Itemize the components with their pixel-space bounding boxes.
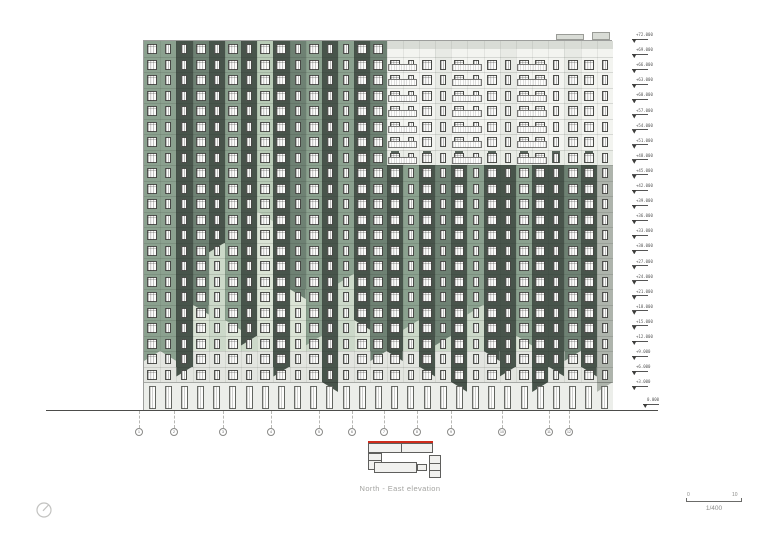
window <box>357 246 367 256</box>
level-marker: +27.000 <box>630 260 654 270</box>
window <box>228 122 238 132</box>
window <box>214 292 220 302</box>
level-value: +36.000 <box>636 214 653 218</box>
window <box>487 215 497 225</box>
window <box>373 184 383 194</box>
window <box>147 277 157 287</box>
window <box>357 184 367 194</box>
level-value: +57.000 <box>636 109 653 113</box>
level-triangle <box>632 190 637 194</box>
window <box>505 277 511 287</box>
level-marker: +33.000 <box>630 229 654 239</box>
window <box>584 184 594 194</box>
window <box>454 370 464 380</box>
ground-floor-window <box>310 386 317 409</box>
window <box>390 277 400 287</box>
window <box>214 230 220 240</box>
column-line <box>548 41 549 382</box>
window <box>505 246 511 256</box>
window <box>214 91 220 101</box>
window <box>519 370 529 380</box>
window <box>584 261 594 271</box>
window <box>553 91 559 101</box>
window <box>260 246 270 256</box>
window <box>343 354 349 364</box>
window <box>276 44 286 54</box>
window <box>343 339 349 349</box>
window <box>327 230 333 240</box>
key-plan-divider <box>429 470 441 471</box>
window <box>584 199 594 209</box>
level-value: +39.000 <box>636 199 653 203</box>
window <box>422 323 432 333</box>
window <box>165 339 171 349</box>
window <box>260 75 270 85</box>
floor-line <box>144 72 613 73</box>
window <box>260 370 270 380</box>
window <box>568 277 578 287</box>
window <box>505 292 511 302</box>
window <box>505 339 511 349</box>
window <box>584 137 594 147</box>
ground-floor-window <box>326 386 333 409</box>
window <box>357 44 367 54</box>
window <box>165 215 171 225</box>
column-line <box>338 41 339 382</box>
window <box>473 354 479 364</box>
window <box>440 60 446 70</box>
window <box>568 308 578 318</box>
level-marker: +54.000 <box>630 124 654 134</box>
window <box>373 153 383 163</box>
window <box>214 153 220 163</box>
window <box>602 199 608 209</box>
window <box>343 168 349 178</box>
window <box>422 199 432 209</box>
window <box>408 354 414 364</box>
window <box>568 122 578 132</box>
window <box>196 370 206 380</box>
window <box>343 106 349 116</box>
window <box>505 199 511 209</box>
window <box>327 246 333 256</box>
window <box>568 215 578 225</box>
window <box>295 277 301 287</box>
window <box>357 91 367 101</box>
facade-parapet-band <box>532 41 548 49</box>
window <box>196 122 206 132</box>
window <box>228 75 238 85</box>
window <box>147 246 157 256</box>
window <box>181 106 187 116</box>
level-marker: +48.000 <box>630 154 654 164</box>
ground-floor-window <box>375 386 382 409</box>
level-value: +21.000 <box>636 290 653 294</box>
window <box>408 230 414 240</box>
ground-floor-window <box>440 386 447 409</box>
window <box>327 137 333 147</box>
grid-axis-line <box>223 411 224 428</box>
scale-bar-left-label: 0 <box>687 493 690 498</box>
window <box>165 199 171 209</box>
floor-line <box>144 305 613 306</box>
column-line <box>564 41 565 382</box>
window <box>473 308 479 318</box>
facade-parapet-band <box>467 41 483 49</box>
level-marker: +45.000 <box>630 169 654 179</box>
window <box>505 122 511 132</box>
window <box>228 153 238 163</box>
window <box>408 308 414 318</box>
window <box>214 277 220 287</box>
level-value: +33.000 <box>636 229 653 233</box>
window <box>246 153 252 163</box>
window <box>568 246 578 256</box>
window <box>454 168 464 178</box>
window <box>373 137 383 147</box>
level-value: +6.000 <box>636 365 650 369</box>
scale-bar-right-label: 10 <box>732 493 738 498</box>
floor-line <box>144 103 613 104</box>
window <box>147 122 157 132</box>
window <box>214 122 220 132</box>
column-line <box>435 41 436 382</box>
window <box>584 308 594 318</box>
column-line <box>273 41 274 382</box>
window <box>309 184 319 194</box>
window <box>196 137 206 147</box>
window <box>165 137 171 147</box>
window <box>454 308 464 318</box>
window <box>373 230 383 240</box>
window <box>519 308 529 318</box>
window <box>454 339 464 349</box>
window <box>487 339 497 349</box>
window <box>584 153 594 163</box>
window <box>181 277 187 287</box>
window <box>519 230 529 240</box>
window <box>535 184 545 194</box>
window <box>228 354 238 364</box>
window <box>309 354 319 364</box>
grid-axis-line <box>569 411 570 428</box>
window <box>147 323 157 333</box>
window <box>373 44 383 54</box>
window <box>505 106 511 116</box>
floor-line <box>144 150 613 151</box>
window <box>214 184 220 194</box>
window <box>487 137 497 147</box>
window <box>276 122 286 132</box>
window <box>568 137 578 147</box>
window <box>295 215 301 225</box>
window <box>473 246 479 256</box>
window <box>295 261 301 271</box>
window <box>553 199 559 209</box>
ground-floor-window <box>197 386 204 409</box>
window <box>214 44 220 54</box>
facade-parapet-band <box>419 41 435 49</box>
building-elevation <box>143 40 612 410</box>
window <box>422 292 432 302</box>
window <box>487 292 497 302</box>
window <box>327 292 333 302</box>
level-marker: +57.000 <box>630 109 654 119</box>
window <box>584 168 594 178</box>
grid-bubble: 3 <box>219 428 227 436</box>
window <box>260 215 270 225</box>
column-line <box>241 41 242 382</box>
window <box>309 370 319 380</box>
floor-line <box>144 165 613 166</box>
window <box>373 168 383 178</box>
level-value: +30.000 <box>636 244 653 248</box>
window <box>228 370 238 380</box>
window <box>440 137 446 147</box>
level-value: +3.000 <box>636 380 650 384</box>
window <box>214 60 220 70</box>
level-value: +66.000 <box>636 63 653 67</box>
window <box>487 323 497 333</box>
level-triangle <box>632 341 637 345</box>
window <box>147 44 157 54</box>
facade-parapet-band <box>564 41 580 49</box>
floor-line <box>144 134 613 135</box>
level-triangle <box>632 250 637 254</box>
window <box>147 137 157 147</box>
facade-parapet-band <box>516 41 532 49</box>
window <box>343 370 349 380</box>
floor-line <box>144 289 613 290</box>
window <box>214 215 220 225</box>
level-triangle <box>643 404 648 408</box>
key-plan-building-lower-ext <box>417 464 427 471</box>
window <box>327 323 333 333</box>
level-value: 0.000 <box>647 398 659 402</box>
level-marker: +6.000 <box>630 365 654 375</box>
window <box>422 75 432 85</box>
window <box>602 354 608 364</box>
window <box>165 91 171 101</box>
window <box>553 323 559 333</box>
window <box>196 261 206 271</box>
window <box>327 354 333 364</box>
window <box>295 137 301 147</box>
window <box>487 153 497 163</box>
window <box>327 215 333 225</box>
level-triangle <box>632 39 637 43</box>
window <box>535 339 545 349</box>
window <box>196 308 206 318</box>
window <box>327 75 333 85</box>
window <box>390 261 400 271</box>
window <box>181 91 187 101</box>
window <box>357 75 367 85</box>
window <box>147 308 157 318</box>
window <box>181 230 187 240</box>
key-plan-divider <box>368 460 382 461</box>
window <box>214 137 220 147</box>
window <box>473 323 479 333</box>
level-triangle <box>632 220 637 224</box>
window <box>602 106 608 116</box>
window <box>408 168 414 178</box>
north-compass-icon <box>34 500 54 520</box>
ground-floor-window <box>601 386 608 409</box>
level-value: +48.000 <box>636 154 653 158</box>
facade-parapet-band <box>500 41 516 49</box>
window <box>584 339 594 349</box>
window <box>181 370 187 380</box>
window <box>327 308 333 318</box>
window <box>295 91 301 101</box>
window <box>276 106 286 116</box>
level-triangle <box>632 145 637 149</box>
column-line <box>209 41 210 382</box>
window <box>440 308 446 318</box>
window <box>553 75 559 85</box>
window <box>276 184 286 194</box>
window <box>487 354 497 364</box>
window <box>295 308 301 318</box>
window <box>568 230 578 240</box>
window <box>422 277 432 287</box>
window <box>246 60 252 70</box>
window <box>408 292 414 302</box>
level-triangle <box>632 205 637 209</box>
window <box>309 75 319 85</box>
window <box>584 91 594 101</box>
window <box>181 60 187 70</box>
window <box>440 75 446 85</box>
window <box>584 75 594 85</box>
floor-line <box>144 181 613 182</box>
window <box>584 230 594 240</box>
window <box>246 230 252 240</box>
window <box>343 230 349 240</box>
key-plan-divider <box>429 463 441 464</box>
level-marker: 0.000 <box>641 398 665 408</box>
window <box>343 215 349 225</box>
window <box>553 354 559 364</box>
window <box>181 199 187 209</box>
grid-bubble: 8 <box>413 428 421 436</box>
level-marker: +72.000 <box>630 33 654 43</box>
window <box>228 137 238 147</box>
column-line <box>467 41 468 382</box>
grid-axis-line <box>319 411 320 428</box>
window <box>196 230 206 240</box>
window <box>147 91 157 101</box>
floor-line <box>144 320 613 321</box>
window <box>276 75 286 85</box>
window <box>357 230 367 240</box>
ground-floor-window <box>472 386 479 409</box>
level-marker: +18.000 <box>630 305 654 315</box>
window <box>357 153 367 163</box>
window <box>505 91 511 101</box>
window <box>357 292 367 302</box>
window <box>454 246 464 256</box>
window <box>228 323 238 333</box>
window <box>295 44 301 54</box>
window <box>181 308 187 318</box>
window <box>295 323 301 333</box>
window <box>309 246 319 256</box>
floor-line <box>144 227 613 228</box>
window <box>260 91 270 101</box>
window <box>440 168 446 178</box>
level-triangle <box>632 296 637 300</box>
window <box>165 168 171 178</box>
window <box>568 91 578 101</box>
window <box>602 261 608 271</box>
ground-floor-window <box>504 386 511 409</box>
grid-axis-line <box>502 411 503 428</box>
window <box>408 339 414 349</box>
window <box>147 199 157 209</box>
window <box>553 246 559 256</box>
window <box>357 354 367 364</box>
window <box>568 370 578 380</box>
window <box>181 168 187 178</box>
window <box>196 199 206 209</box>
level-value: +24.000 <box>636 275 653 279</box>
level-marker: +3.000 <box>630 380 654 390</box>
window <box>473 370 479 380</box>
level-marker: +15.000 <box>630 320 654 330</box>
window <box>373 75 383 85</box>
column-line <box>160 41 161 382</box>
window <box>454 261 464 271</box>
window <box>373 308 383 318</box>
window <box>408 261 414 271</box>
column-line <box>370 41 371 382</box>
level-value: +69.000 <box>636 48 653 52</box>
ground-floor-window <box>343 386 350 409</box>
window <box>214 339 220 349</box>
window <box>390 184 400 194</box>
window <box>519 277 529 287</box>
window <box>228 230 238 240</box>
window <box>276 91 286 101</box>
window <box>181 137 187 147</box>
window <box>214 308 220 318</box>
window <box>260 137 270 147</box>
grid-axis-line <box>139 411 140 428</box>
window <box>295 230 301 240</box>
window <box>196 323 206 333</box>
window <box>568 354 578 364</box>
level-marker: +30.000 <box>630 244 654 254</box>
window <box>487 60 497 70</box>
window <box>327 277 333 287</box>
window <box>196 292 206 302</box>
window <box>309 106 319 116</box>
floor-line <box>144 196 613 197</box>
window <box>473 199 479 209</box>
level-triangle <box>632 54 637 58</box>
window <box>519 354 529 364</box>
window <box>309 308 319 318</box>
window <box>260 199 270 209</box>
window <box>408 199 414 209</box>
level-triangle <box>632 281 637 285</box>
window <box>343 199 349 209</box>
ground-floor-window <box>585 386 592 409</box>
floor-line <box>144 258 613 259</box>
window <box>260 168 270 178</box>
